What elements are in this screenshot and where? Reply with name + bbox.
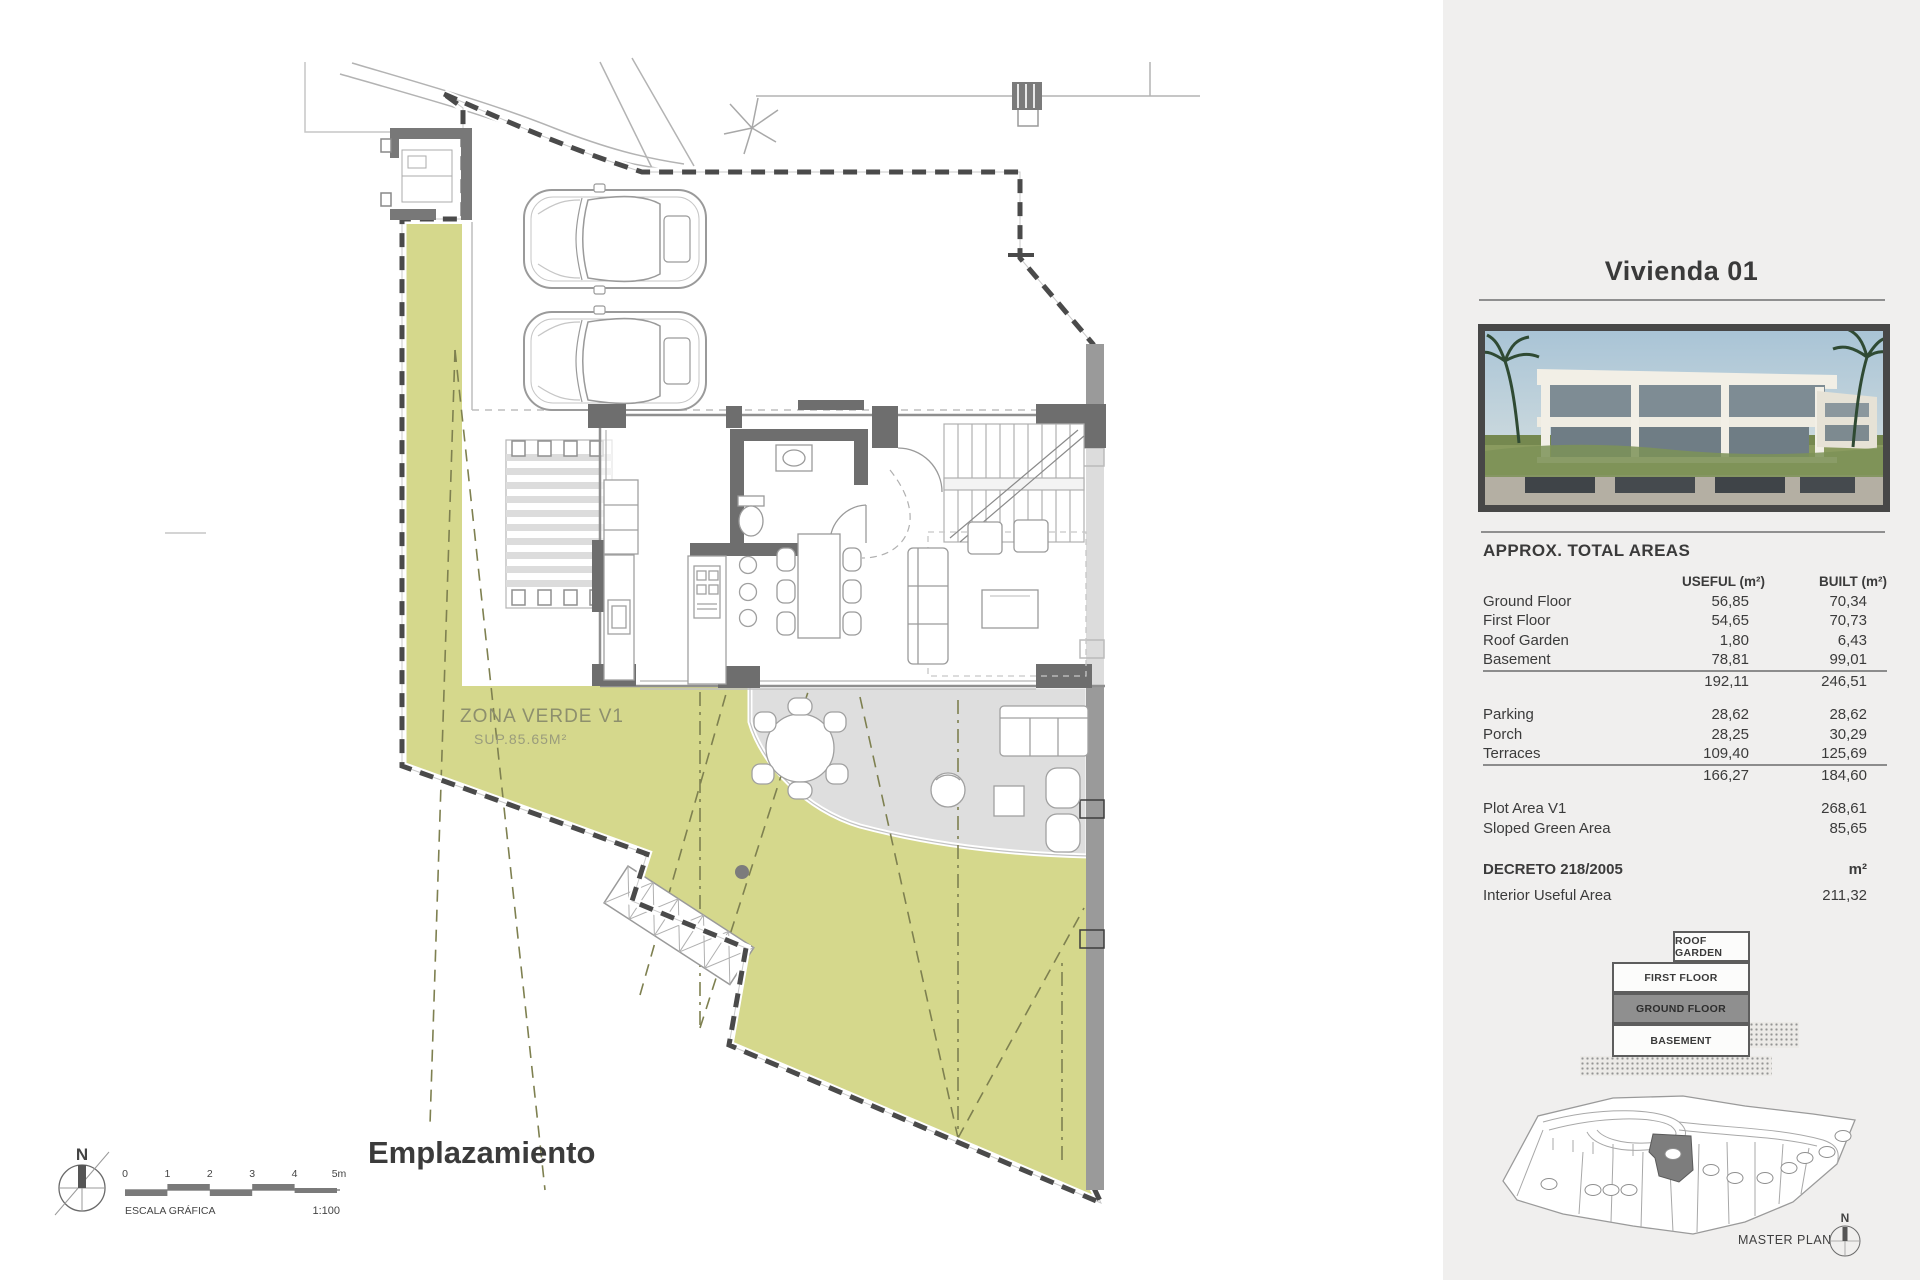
scale-label: ESCALA GRÁFICA [125, 1204, 215, 1217]
car-2 [524, 306, 706, 416]
ground-hatch-bottom [1580, 1056, 1772, 1076]
stack-basement: BASEMENT [1612, 1024, 1750, 1057]
table-row: Parking 28,62 28,62 [1483, 705, 1887, 725]
floors-total-row: 192,11 246,51 [1483, 670, 1887, 692]
stack-first-floor: FIRST FLOOR [1612, 962, 1750, 993]
panel-title: Vivienda 01 [1443, 256, 1920, 287]
zona-verde-sup: SUP.85.65M² [474, 731, 567, 747]
page: ZONA VERDE V1 SUP.85.65M² Emplazamiento … [0, 0, 1920, 1280]
table-row: Porch 28,25 30,29 [1483, 725, 1887, 745]
scale-bar: 0 1 2 3 4 5m ESCALA GRÁFICA 1:100 [122, 1168, 346, 1217]
car-1 [524, 184, 706, 294]
decreto-row: Interior Useful Area 211,32 [1483, 886, 1887, 906]
plan-caption: Emplazamiento [368, 1135, 595, 1170]
north-arrow: N [55, 1145, 109, 1215]
svg-text:4: 4 [292, 1168, 298, 1180]
master-plan: MASTER PLAN N [1483, 1086, 1903, 1276]
svg-text:N: N [76, 1145, 88, 1164]
table-row: First Floor 54,65 70,73 [1483, 611, 1887, 631]
master-plan-label: MASTER PLAN [1738, 1233, 1832, 1247]
master-plan-north: N [1830, 1211, 1860, 1256]
stack-roof-garden: ROOF GARDEN [1673, 931, 1750, 962]
areas-rule [1481, 531, 1885, 533]
villa-photo [1478, 324, 1890, 512]
table-row: Plot Area V1 268,61 [1483, 799, 1887, 819]
col-useful: USEFUL (m²) [1667, 572, 1765, 592]
svg-text:0: 0 [122, 1168, 128, 1180]
areas-heading: APPROX. TOTAL AREAS [1483, 541, 1690, 561]
site-marker [1012, 82, 1042, 126]
decreto-heading-row: DECRETO 218/2005 m² [1483, 860, 1887, 880]
ground-hatch-right [1749, 1022, 1799, 1048]
exterior-total-row: 166,27 184,60 [1483, 764, 1887, 786]
zona-verde-label: ZONA VERDE V1 [460, 706, 624, 727]
scale-ratio: 1:100 [312, 1205, 340, 1217]
dining [777, 534, 861, 638]
col-built: BUILT (m²) [1765, 572, 1887, 592]
table-row: Terraces 109,40 125,69 [1483, 744, 1887, 764]
tree-icon [724, 98, 778, 154]
stack-ground-floor: GROUND FLOOR [1612, 993, 1750, 1024]
svg-text:2: 2 [207, 1168, 213, 1180]
svg-text:N: N [1841, 1211, 1850, 1225]
svg-text:5m: 5m [332, 1168, 347, 1180]
site-plan: ZONA VERDE V1 SUP.85.65M² Emplazamiento … [0, 0, 1443, 1280]
info-panel: Vivienda 01 [1443, 0, 1920, 1280]
context-lines [165, 62, 392, 533]
table-row: Sloped Green Area 85,65 [1483, 819, 1887, 839]
svg-text:3: 3 [249, 1168, 255, 1180]
title-rule [1479, 299, 1885, 301]
table-row: Ground Floor 56,85 70,34 [1483, 592, 1887, 612]
garage-store [381, 128, 472, 220]
table-row: Basement 78,81 99,01 [1483, 650, 1887, 670]
svg-text:1: 1 [164, 1168, 170, 1180]
areas-table: USEFUL (m²) BUILT (m²) Ground Floor 56,8… [1483, 572, 1887, 905]
table-row: Roof Garden 1,80 6,43 [1483, 631, 1887, 651]
